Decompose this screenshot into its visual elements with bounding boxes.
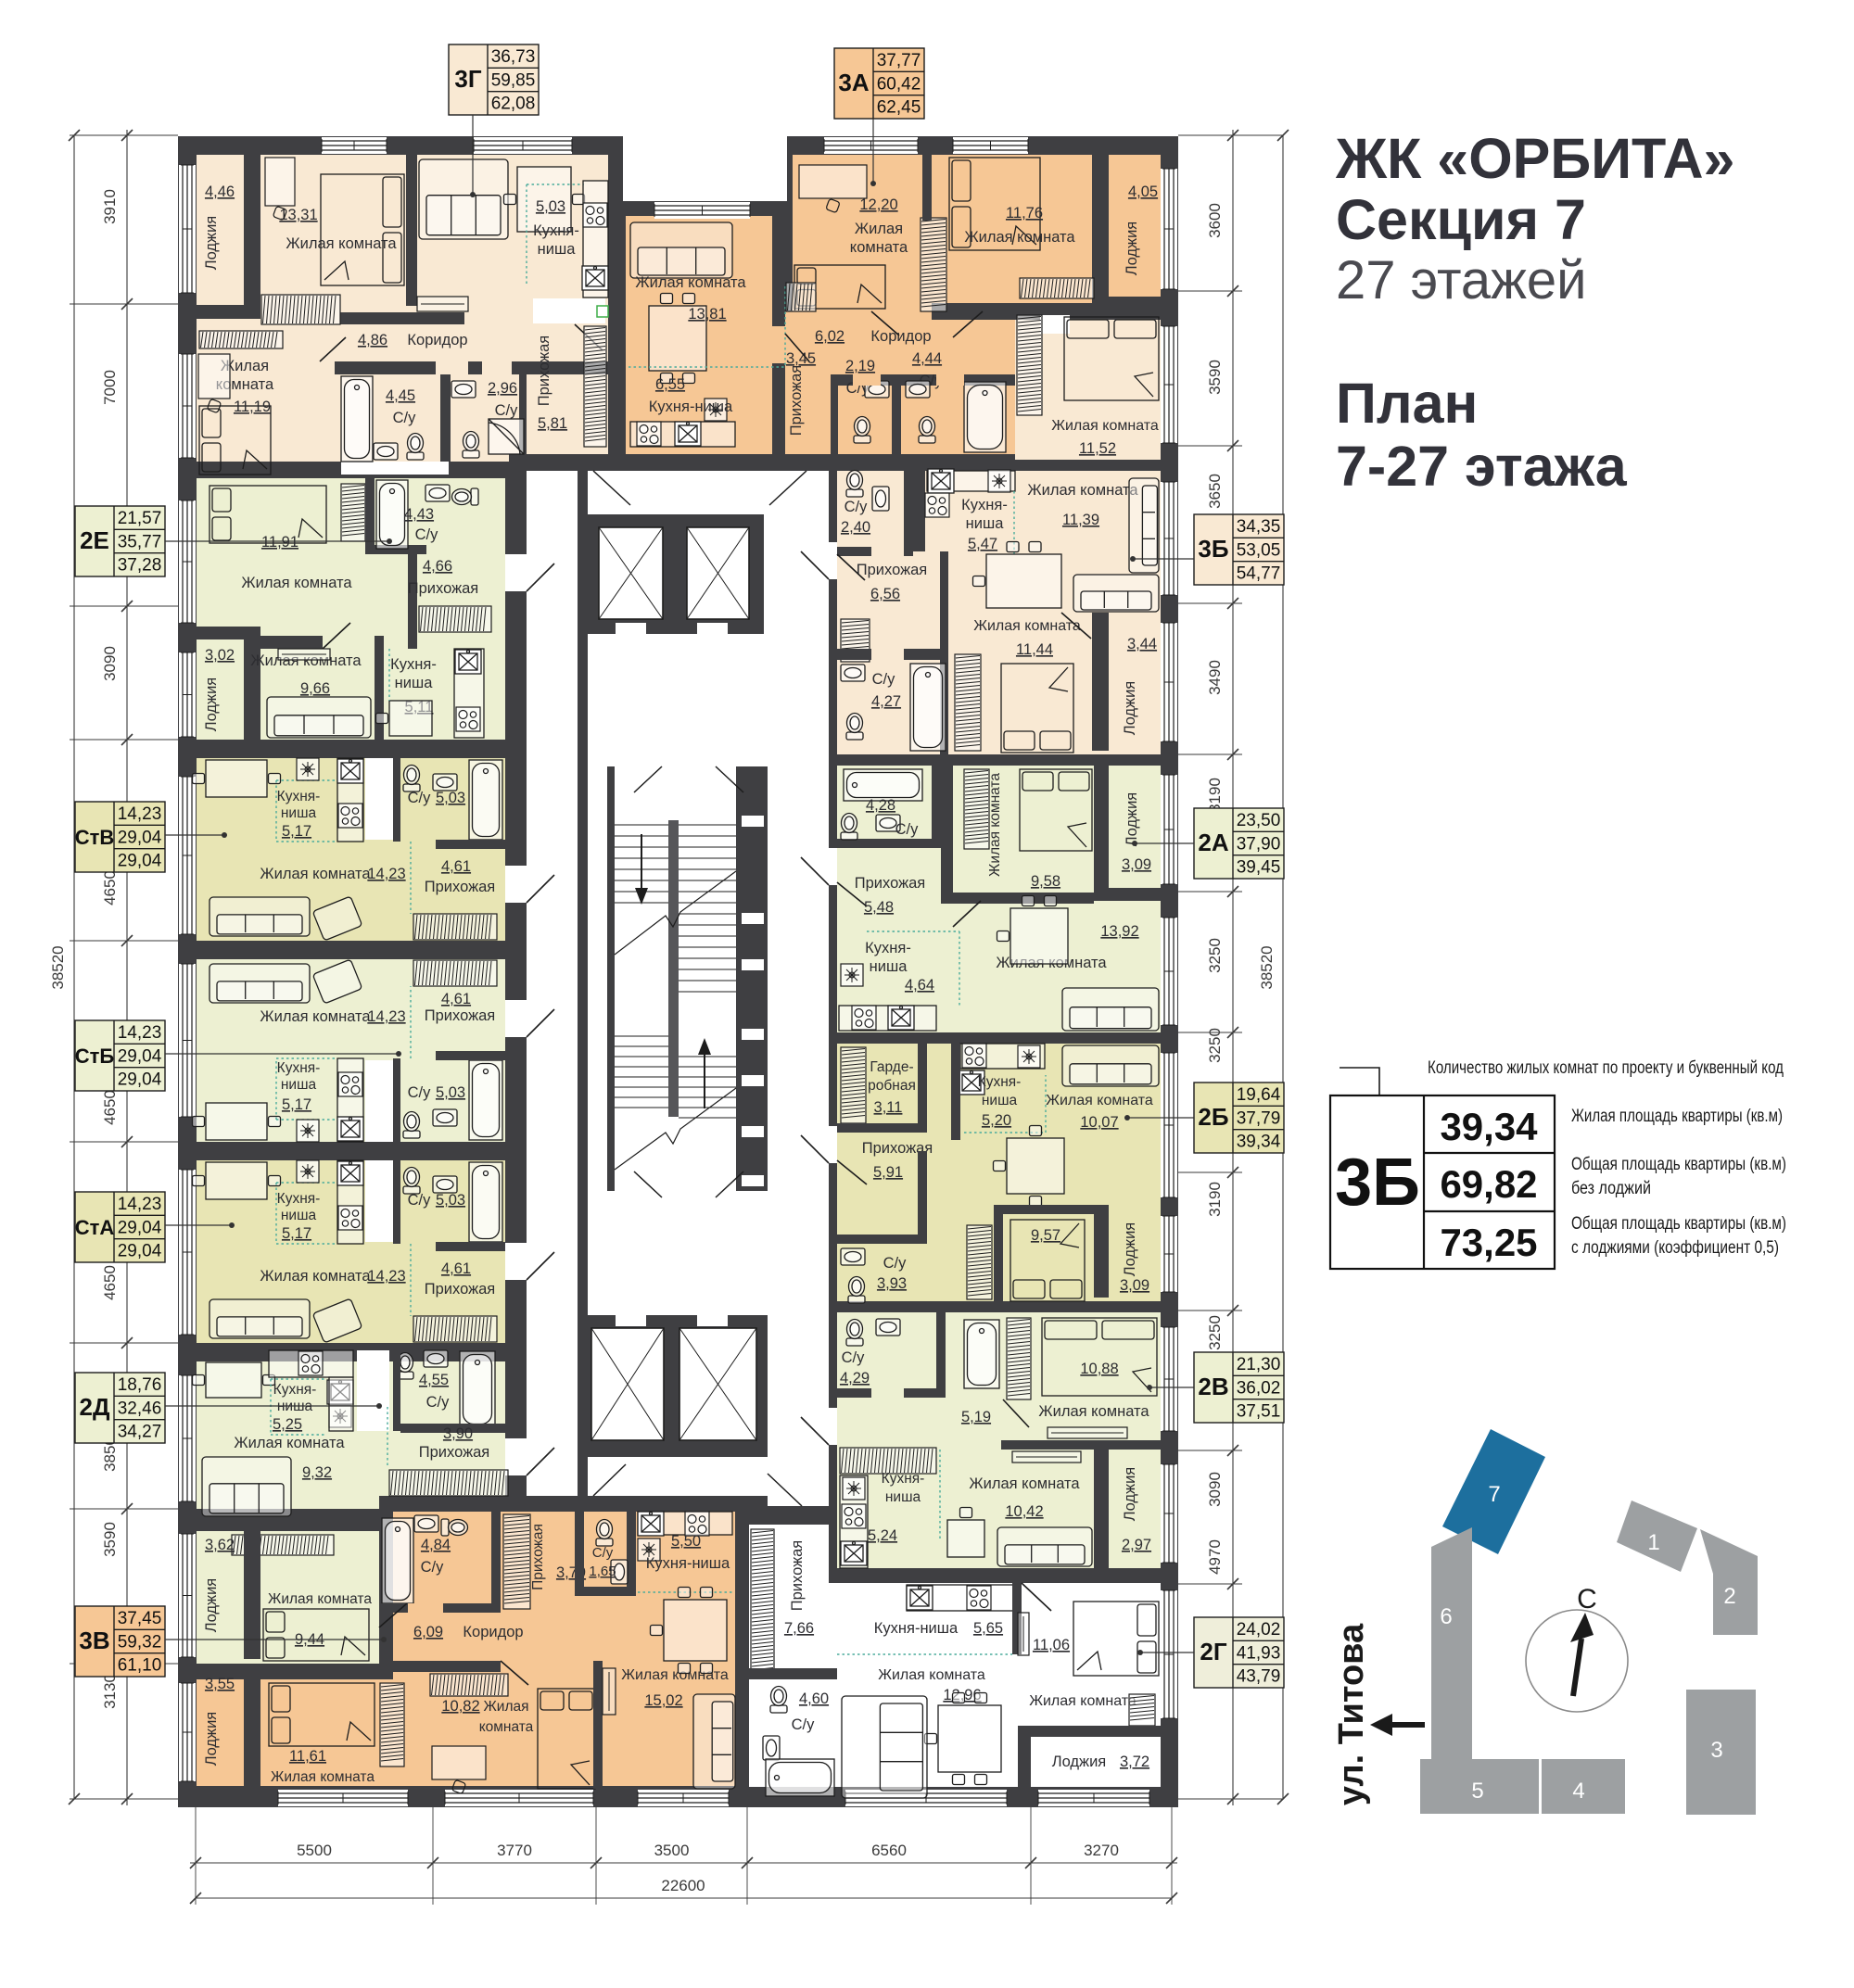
svg-text:Кухня-: Кухня- [882, 1471, 925, 1487]
svg-text:С/у: С/у [792, 1716, 816, 1733]
svg-text:3,09: 3,09 [1120, 1277, 1149, 1294]
svg-text:4,61: 4,61 [441, 858, 471, 875]
svg-text:6: 6 [1440, 1604, 1452, 1629]
svg-text:ниша: ниша [281, 805, 317, 821]
svg-text:ниша: ниша [538, 241, 577, 258]
svg-text:10,88: 10,88 [1080, 1361, 1118, 1377]
svg-text:21,57: 21,57 [118, 509, 162, 528]
svg-text:Коридор: Коридор [870, 328, 931, 345]
svg-text:Жилая комната: Жилая комната [271, 1769, 375, 1785]
svg-text:Жилая комната: Жилая комната [268, 1591, 372, 1607]
svg-text:ниша: ниша [966, 515, 1005, 532]
svg-text:Лоджия: Лоджия [1124, 222, 1140, 275]
svg-text:С/у: С/у [592, 1545, 614, 1561]
svg-text:Лоджия: Лоджия [1122, 1222, 1138, 1276]
svg-text:4,64: 4,64 [905, 977, 934, 994]
svg-text:Кухня-: Кухня- [865, 940, 911, 956]
svg-text:4650: 4650 [101, 1265, 119, 1300]
svg-text:С/у: С/у [842, 1349, 866, 1366]
svg-text:Кухня-: Кухня- [533, 222, 579, 239]
svg-text:9,32: 9,32 [302, 1464, 332, 1481]
svg-text:11,61: 11,61 [289, 1748, 326, 1765]
svg-text:Жилая комната: Жилая комната [878, 1667, 985, 1683]
svg-text:1: 1 [1647, 1530, 1659, 1555]
svg-text:36,02: 36,02 [1237, 1378, 1281, 1398]
svg-text:Прихожая: Прихожая [425, 879, 495, 895]
svg-text:35,77: 35,77 [118, 532, 162, 551]
svg-text:Кухня-: Кухня- [277, 1191, 321, 1207]
svg-text:19,64: 19,64 [1237, 1085, 1281, 1105]
svg-text:3590: 3590 [1206, 360, 1224, 395]
svg-text:4,46: 4,46 [205, 184, 235, 200]
svg-text:36,73: 36,73 [491, 47, 536, 67]
svg-text:Жилая комната: Жилая комната [260, 1008, 371, 1025]
svg-text:С/у: С/у [844, 499, 869, 515]
svg-text:С/у: С/у [883, 1255, 908, 1272]
svg-text:Жилая комната: Жилая комната [260, 1268, 371, 1285]
svg-text:4650: 4650 [101, 1090, 119, 1125]
svg-text:37,79: 37,79 [1237, 1108, 1281, 1128]
svg-text:Жилая комната: Жилая комната [1038, 1403, 1149, 1420]
svg-text:Лоджия: Лоджия [203, 677, 220, 731]
svg-text:6560: 6560 [871, 1842, 907, 1859]
svg-text:СтА: СтА [75, 1216, 115, 1239]
svg-text:3770: 3770 [497, 1842, 532, 1859]
svg-text:с лоджиями (коэффициент 0,5): с лоджиями (коэффициент 0,5) [1571, 1238, 1779, 1258]
svg-text:ниша: ниша [870, 958, 908, 975]
svg-text:Секция 7: Секция 7 [1336, 188, 1586, 251]
svg-text:Жилая комната: Жилая комната [1051, 418, 1159, 434]
svg-text:СтВ: СтВ [75, 826, 115, 849]
svg-text:5500: 5500 [297, 1842, 332, 1859]
svg-text:Кухня-: Кухня- [978, 1074, 1022, 1090]
svg-text:Жилая комната: Жилая комната [973, 618, 1081, 634]
svg-text:13,81: 13,81 [688, 306, 726, 323]
svg-text:3250: 3250 [1206, 938, 1224, 973]
svg-text:5,03: 5,03 [436, 1192, 465, 1209]
svg-text:9,66: 9,66 [300, 680, 330, 697]
svg-text:3090: 3090 [1206, 1472, 1224, 1507]
svg-text:Прихожая: Прихожая [857, 562, 927, 578]
svg-text:С: С [1577, 1584, 1597, 1614]
svg-text:Жилая комната: Жилая комната [1046, 1093, 1153, 1108]
svg-text:Жилая комната: Жилая комната [969, 1475, 1080, 1492]
svg-text:3,62: 3,62 [205, 1537, 235, 1553]
svg-text:Кухня-: Кухня- [390, 656, 437, 673]
svg-text:5,50: 5,50 [671, 1533, 701, 1550]
svg-text:3490: 3490 [1206, 660, 1224, 695]
svg-text:3190: 3190 [1206, 778, 1224, 813]
svg-text:3500: 3500 [654, 1842, 690, 1859]
svg-text:ниша: ниша [395, 675, 434, 691]
svg-text:34,27: 34,27 [118, 1423, 162, 1442]
svg-text:9,58: 9,58 [1031, 873, 1060, 890]
svg-text:3600: 3600 [1206, 203, 1224, 238]
svg-text:Прихожая: Прихожая [425, 1281, 495, 1298]
svg-text:Общая площадь квартиры (кв.м): Общая площадь квартиры (кв.м) [1571, 1214, 1786, 1234]
svg-text:Количество жилых комнат по про: Количество жилых комнат по проекту и бук… [1428, 1058, 1784, 1078]
svg-text:4,61: 4,61 [441, 1260, 471, 1277]
svg-text:14,23: 14,23 [118, 804, 162, 824]
svg-text:5,81: 5,81 [538, 415, 567, 432]
svg-text:22600: 22600 [661, 1877, 705, 1894]
svg-text:ул. Титова: ул. Титова [1332, 1623, 1371, 1805]
svg-text:3,02: 3,02 [205, 647, 235, 664]
svg-text:Лоджия: Лоджия [1122, 1467, 1138, 1521]
svg-text:59,32: 59,32 [118, 1632, 162, 1652]
svg-text:37,45: 37,45 [118, 1609, 162, 1628]
svg-text:3130: 3130 [101, 1674, 119, 1709]
svg-text:10,42: 10,42 [1005, 1503, 1043, 1520]
svg-text:5,03: 5,03 [536, 198, 565, 215]
svg-text:комната: комната [850, 239, 908, 256]
svg-text:5,25: 5,25 [273, 1416, 302, 1433]
svg-text:29,04: 29,04 [118, 852, 162, 871]
svg-text:37,90: 37,90 [1237, 834, 1281, 854]
svg-text:4650: 4650 [101, 870, 119, 905]
svg-text:3,44: 3,44 [1127, 636, 1157, 652]
svg-text:4970: 4970 [1206, 1539, 1224, 1575]
svg-text:37,77: 37,77 [877, 51, 921, 70]
svg-text:3090: 3090 [101, 646, 119, 681]
svg-text:С/у: С/у [426, 1394, 451, 1411]
svg-text:39,45: 39,45 [1237, 858, 1281, 878]
svg-text:2Д: 2Д [80, 1393, 110, 1421]
svg-text:Прихожая: Прихожая [530, 1524, 546, 1590]
svg-text:60,42: 60,42 [877, 74, 921, 94]
svg-text:1,65: 1,65 [589, 1564, 616, 1579]
svg-text:5: 5 [1471, 1779, 1483, 1804]
svg-text:6,02: 6,02 [815, 328, 844, 345]
svg-text:Кухня-: Кухня- [277, 1060, 321, 1076]
svg-text:Кухня-: Кухня- [277, 789, 321, 804]
svg-text:3,09: 3,09 [1122, 856, 1151, 873]
svg-text:Коридор: Коридор [407, 332, 467, 348]
svg-text:29,04: 29,04 [118, 828, 162, 847]
svg-text:4,86: 4,86 [358, 332, 387, 348]
svg-text:37,28: 37,28 [118, 556, 162, 576]
svg-text:43,79: 43,79 [1237, 1667, 1281, 1687]
svg-text:3250: 3250 [1206, 1315, 1224, 1350]
svg-text:4,60: 4,60 [799, 1690, 829, 1707]
svg-text:11,76: 11,76 [1006, 205, 1043, 222]
svg-text:29,04: 29,04 [118, 1218, 162, 1237]
svg-text:14,23: 14,23 [367, 1008, 405, 1025]
svg-text:2,96: 2,96 [488, 380, 517, 397]
svg-text:11,52: 11,52 [1079, 440, 1116, 457]
svg-text:Прихожая: Прихожая [419, 1444, 489, 1461]
svg-text:5,17: 5,17 [282, 823, 311, 840]
svg-text:Жилая комната: Жилая комната [286, 235, 397, 252]
svg-text:5,48: 5,48 [864, 899, 894, 916]
svg-text:робная: робная [868, 1078, 916, 1094]
svg-text:С/у: С/у [393, 410, 417, 426]
svg-text:без лоджий: без лоджий [1571, 1179, 1651, 1198]
svg-text:Жилая комната: Жилая комната [241, 575, 352, 591]
svg-text:5,17: 5,17 [282, 1225, 311, 1242]
svg-text:5,91: 5,91 [873, 1164, 903, 1181]
svg-text:11,19: 11,19 [234, 399, 271, 415]
svg-text:38520: 38520 [1258, 945, 1276, 989]
svg-text:Общая площадь квартиры (кв.м): Общая площадь квартиры (кв.м) [1571, 1155, 1786, 1174]
svg-text:62,08: 62,08 [491, 95, 536, 114]
svg-text:15,02: 15,02 [644, 1692, 682, 1709]
svg-text:Лоджия: Лоджия [203, 216, 220, 270]
svg-text:11,39: 11,39 [1062, 512, 1099, 528]
svg-text:5,65: 5,65 [973, 1620, 1003, 1637]
svg-text:37,51: 37,51 [1237, 1402, 1281, 1422]
svg-text:Коридор: Коридор [463, 1624, 523, 1640]
svg-text:План: План [1336, 372, 1478, 435]
svg-text:Лоджия: Лоджия [1052, 1754, 1106, 1770]
svg-text:39,34: 39,34 [1237, 1133, 1281, 1152]
svg-text:38520: 38520 [49, 945, 67, 989]
svg-text:Жилая комната: Жилая комната [635, 274, 746, 291]
svg-text:3,11: 3,11 [874, 1099, 903, 1116]
svg-text:29,04: 29,04 [118, 1070, 162, 1090]
svg-text:2Г: 2Г [1200, 1638, 1226, 1665]
svg-text:3Г: 3Г [454, 65, 481, 93]
svg-text:41,93: 41,93 [1237, 1643, 1281, 1663]
svg-text:3,90: 3,90 [443, 1425, 473, 1442]
svg-text:Прихожая: Прихожая [788, 365, 805, 436]
svg-text:32,46: 32,46 [118, 1399, 162, 1418]
svg-text:39,34: 39,34 [1440, 1105, 1538, 1148]
svg-text:5,24: 5,24 [868, 1527, 897, 1544]
svg-text:3В: 3В [79, 1627, 109, 1654]
svg-text:ЖК «ОРБИТА»: ЖК «ОРБИТА» [1335, 127, 1734, 190]
svg-text:ниша: ниша [982, 1093, 1018, 1108]
svg-text:Прихожая: Прихожая [536, 336, 552, 406]
svg-text:6,56: 6,56 [870, 586, 900, 602]
svg-text:11,91: 11,91 [261, 534, 298, 551]
svg-text:54,77: 54,77 [1237, 564, 1281, 584]
svg-text:Прихожая: Прихожая [789, 1540, 806, 1611]
svg-text:Гарде-: Гарде- [870, 1059, 913, 1075]
svg-text:Жилая площадь квартиры (кв.м): Жилая площадь квартиры (кв.м) [1571, 1107, 1783, 1126]
svg-text:Жилая комната: Жилая комната [234, 1435, 345, 1451]
svg-text:комната: комната [479, 1719, 534, 1735]
svg-text:2: 2 [1723, 1584, 1735, 1609]
svg-text:5,47: 5,47 [968, 536, 997, 552]
svg-text:С/у: С/у [415, 526, 439, 543]
svg-text:4,66: 4,66 [423, 558, 452, 575]
svg-text:3А: 3А [838, 69, 869, 96]
svg-text:3250: 3250 [1206, 1028, 1224, 1063]
svg-text:23,50: 23,50 [1237, 811, 1281, 830]
svg-text:14,23: 14,23 [118, 1195, 162, 1214]
svg-text:3270: 3270 [1084, 1842, 1119, 1859]
svg-text:3,93: 3,93 [877, 1275, 907, 1292]
svg-text:С/у: С/у [408, 1084, 432, 1101]
svg-text:4,44: 4,44 [912, 350, 942, 367]
svg-text:3650: 3650 [1206, 474, 1224, 509]
svg-text:3190: 3190 [1206, 1182, 1224, 1217]
svg-text:13,92: 13,92 [1100, 923, 1138, 940]
svg-text:73,25: 73,25 [1440, 1221, 1537, 1264]
svg-text:24,02: 24,02 [1237, 1620, 1281, 1640]
svg-text:7,66: 7,66 [784, 1620, 814, 1637]
svg-text:Кухня-: Кухня- [273, 1382, 317, 1398]
svg-text:14,23: 14,23 [367, 866, 405, 882]
svg-text:Лоджия: Лоджия [1122, 681, 1138, 735]
svg-text:5,03: 5,03 [436, 1084, 465, 1101]
svg-text:С/у: С/у [421, 1559, 445, 1576]
svg-text:3,55: 3,55 [205, 1676, 235, 1692]
svg-text:2,97: 2,97 [1122, 1537, 1151, 1553]
svg-text:Кухня-ниша: Кухня-ниша [874, 1620, 959, 1637]
svg-text:6,09: 6,09 [413, 1624, 443, 1640]
svg-text:3,72: 3,72 [1120, 1754, 1149, 1770]
svg-text:ниша: ниша [281, 1208, 317, 1223]
svg-text:21,30: 21,30 [1237, 1355, 1281, 1374]
svg-text:2В: 2В [1198, 1373, 1228, 1400]
svg-text:2,40: 2,40 [841, 519, 870, 536]
svg-text:12,20: 12,20 [859, 196, 897, 213]
svg-text:Прихожая: Прихожая [408, 580, 478, 597]
svg-text:14,23: 14,23 [118, 1023, 162, 1043]
svg-text:29,04: 29,04 [118, 1046, 162, 1066]
svg-text:5,20: 5,20 [982, 1112, 1011, 1129]
svg-text:С/у: С/у [408, 790, 432, 806]
svg-text:4,28: 4,28 [866, 797, 895, 814]
svg-text:5,19: 5,19 [961, 1409, 991, 1425]
svg-text:11,06: 11,06 [1033, 1637, 1070, 1653]
svg-text:62,45: 62,45 [877, 98, 921, 118]
svg-text:Кухня-ниша: Кухня-ниша [646, 1555, 730, 1572]
svg-text:4,27: 4,27 [871, 693, 901, 710]
svg-text:Лоджия: Лоджия [1124, 792, 1140, 846]
svg-text:Кухня-ниша: Кухня-ниша [649, 399, 733, 415]
svg-text:18,76: 18,76 [118, 1375, 162, 1395]
svg-text:3Б: 3Б [1335, 1146, 1420, 1220]
svg-text:11,44: 11,44 [1016, 641, 1053, 658]
svg-text:27 этажей: 27 этажей [1336, 250, 1587, 310]
svg-text:4,61: 4,61 [441, 991, 471, 1007]
svg-text:С/у: С/у [495, 402, 519, 419]
svg-text:3910: 3910 [101, 189, 119, 224]
svg-text:14,23: 14,23 [367, 1268, 405, 1285]
svg-text:Прихожая: Прихожая [425, 1007, 495, 1024]
svg-text:9,57: 9,57 [1031, 1227, 1060, 1244]
svg-text:4,05: 4,05 [1128, 184, 1158, 200]
svg-text:Жилая комната: Жилая комната [987, 773, 1003, 877]
svg-text:7-27 этажа: 7-27 этажа [1336, 435, 1628, 498]
svg-text:4,55: 4,55 [419, 1372, 449, 1388]
svg-text:34,35: 34,35 [1237, 517, 1281, 537]
svg-text:10,82: 10,82 [441, 1698, 479, 1715]
svg-text:3: 3 [1710, 1738, 1722, 1763]
svg-text:С/у: С/у [895, 821, 920, 838]
svg-text:ниша: ниша [281, 1077, 317, 1093]
svg-text:2А: 2А [1198, 829, 1228, 856]
svg-text:СтБ: СтБ [75, 1045, 115, 1068]
svg-text:7000: 7000 [101, 370, 119, 405]
svg-text:Жилая комната: Жилая комната [964, 229, 1075, 246]
svg-text:Кухня-: Кухня- [961, 497, 1008, 513]
svg-text:4,45: 4,45 [386, 387, 415, 404]
svg-text:4,43: 4,43 [404, 506, 434, 523]
svg-text:Лоджия: Лоджия [203, 1712, 220, 1766]
svg-text:Жилая комната: Жилая комната [1027, 482, 1138, 499]
svg-text:4: 4 [1572, 1779, 1584, 1804]
svg-text:2,19: 2,19 [845, 358, 875, 374]
svg-text:4,29: 4,29 [840, 1370, 870, 1387]
svg-text:Жилая: Жилая [855, 221, 903, 237]
svg-text:69,82: 69,82 [1440, 1162, 1537, 1206]
svg-text:3590: 3590 [101, 1522, 119, 1557]
svg-text:Лоджия: Лоджия [203, 1578, 220, 1632]
svg-text:5,17: 5,17 [282, 1096, 311, 1113]
svg-text:ниша: ниша [885, 1489, 921, 1505]
svg-text:6,55: 6,55 [655, 376, 685, 393]
svg-text:10,07: 10,07 [1080, 1114, 1118, 1131]
svg-text:С/у: С/у [872, 671, 896, 688]
svg-text:Прихожая: Прихожая [855, 875, 925, 892]
svg-text:29,04: 29,04 [118, 1242, 162, 1261]
svg-text:61,10: 61,10 [118, 1656, 162, 1676]
svg-text:Жилая комната: Жилая комната [260, 866, 371, 882]
svg-text:5,03: 5,03 [436, 790, 465, 806]
svg-text:2Б: 2Б [1198, 1103, 1228, 1131]
svg-text:59,85: 59,85 [491, 70, 536, 90]
svg-text:4,84: 4,84 [421, 1537, 451, 1553]
svg-text:Жилая: Жилая [483, 1699, 528, 1715]
svg-text:С/у: С/у [408, 1192, 432, 1209]
svg-text:3Б: 3Б [1198, 535, 1228, 563]
svg-text:Жилая комната: Жилая комната [1029, 1693, 1137, 1709]
svg-text:53,05: 53,05 [1237, 540, 1281, 560]
svg-text:7: 7 [1488, 1482, 1500, 1507]
svg-text:2Е: 2Е [80, 526, 109, 554]
